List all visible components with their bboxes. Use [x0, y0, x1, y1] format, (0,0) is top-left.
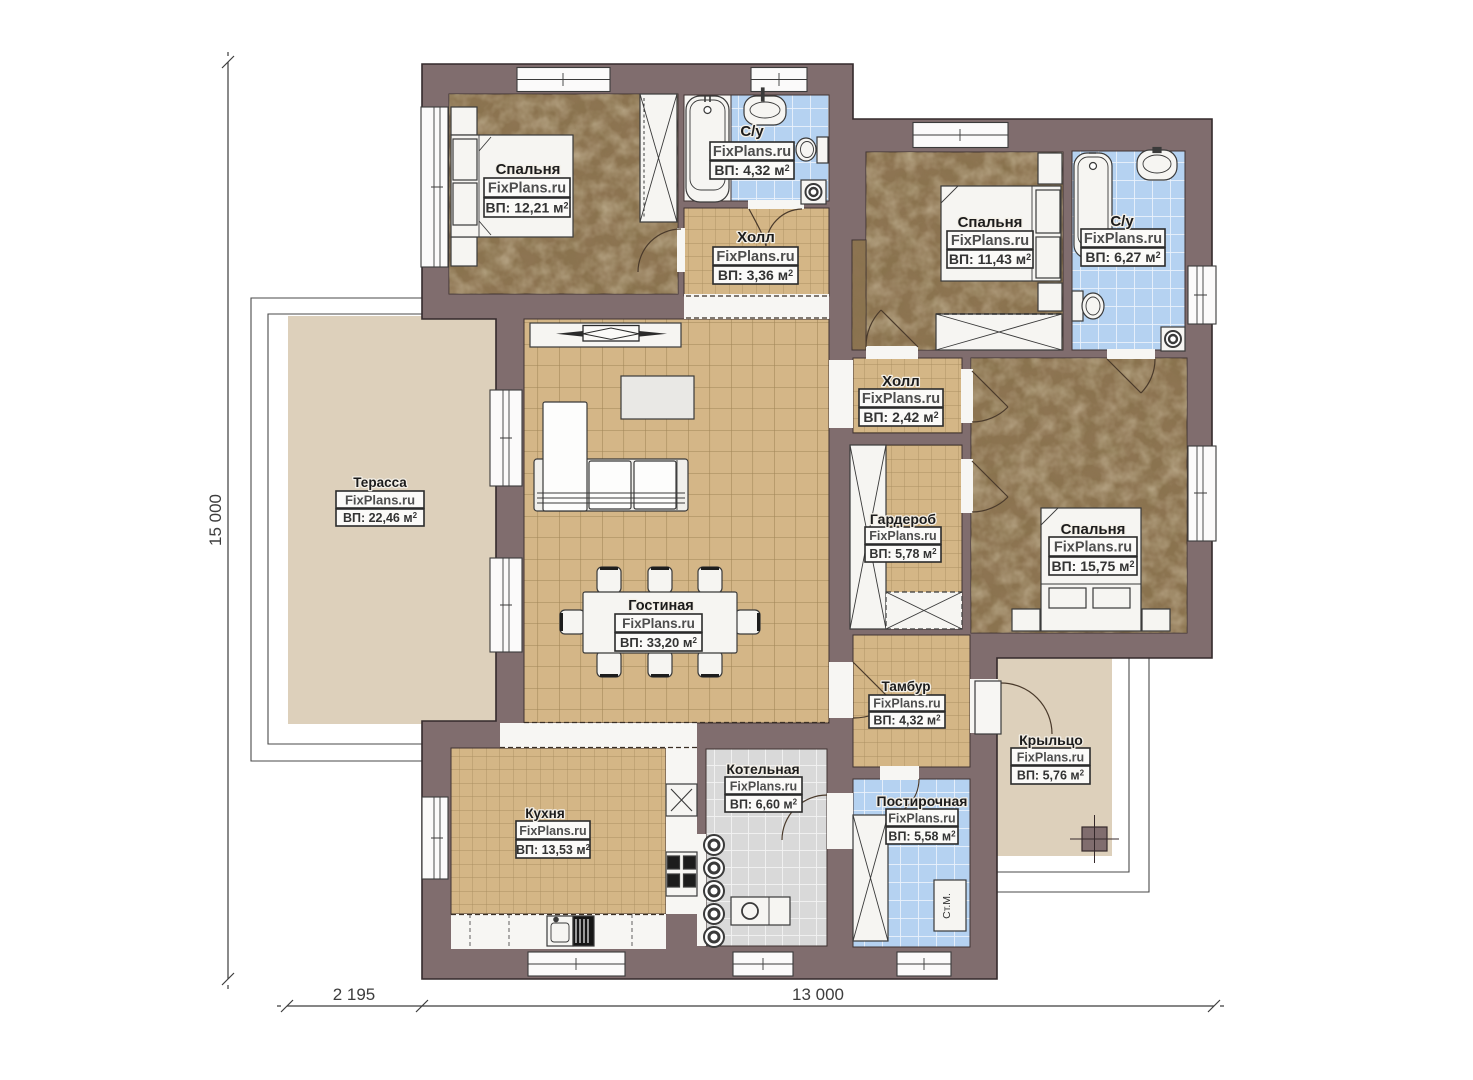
svg-text:15 000: 15 000: [206, 494, 225, 546]
svg-text:FixPlans.ru: FixPlans.ru: [862, 391, 940, 407]
svg-text:ВП: 33,20 м2: ВП: 33,20 м2: [620, 635, 697, 650]
svg-text:ВП: 22,46 м2: ВП: 22,46 м2: [343, 511, 418, 525]
svg-text:С/у: С/у: [740, 123, 764, 140]
svg-text:ВП: 5,58 м2: ВП: 5,58 м2: [888, 830, 956, 844]
svg-text:ВП: 13,53 м2: ВП: 13,53 м2: [516, 843, 591, 857]
svg-text:FixPlans.ru: FixPlans.ru: [622, 616, 695, 631]
svg-text:Крыльцо: Крыльцо: [1019, 732, 1083, 748]
svg-text:Кухня: Кухня: [525, 806, 564, 821]
svg-text:FixPlans.ru: FixPlans.ru: [345, 493, 415, 508]
svg-text:FixPlans.ru: FixPlans.ru: [713, 144, 791, 160]
svg-text:FixPlans.ru: FixPlans.ru: [730, 780, 797, 794]
svg-text:ВП: 3,36 м2: ВП: 3,36 м2: [718, 267, 793, 283]
svg-text:13 000: 13 000: [792, 985, 844, 1004]
svg-text:ВП: 4,32 м2: ВП: 4,32 м2: [873, 714, 941, 728]
svg-text:Холл: Холл: [737, 229, 775, 246]
svg-text:FixPlans.ru: FixPlans.ru: [873, 697, 940, 711]
svg-text:Тамбур: Тамбур: [882, 679, 931, 694]
svg-text:FixPlans.ru: FixPlans.ru: [888, 812, 955, 826]
svg-text:FixPlans.ru: FixPlans.ru: [1084, 231, 1162, 247]
svg-text:Спальня: Спальня: [958, 214, 1023, 231]
svg-text:ВП: 5,76 м2: ВП: 5,76 м2: [1017, 769, 1085, 783]
svg-text:FixPlans.ru: FixPlans.ru: [869, 529, 936, 543]
svg-text:FixPlans.ru: FixPlans.ru: [488, 181, 566, 197]
svg-text:Гостиная: Гостиная: [628, 598, 694, 614]
svg-text:Спальня: Спальня: [496, 161, 561, 178]
svg-text:С/у: С/у: [1110, 213, 1134, 230]
svg-text:FixPlans.ru: FixPlans.ru: [951, 233, 1029, 249]
svg-text:ВП: 2,42 м2: ВП: 2,42 м2: [863, 409, 938, 425]
svg-text:2 195: 2 195: [333, 985, 376, 1004]
svg-text:Котельная: Котельная: [726, 761, 799, 777]
svg-text:ВП: 4,32 м2: ВП: 4,32 м2: [714, 162, 789, 178]
svg-text:FixPlans.ru: FixPlans.ru: [1054, 540, 1132, 556]
svg-text:ВП: 15,75 м2: ВП: 15,75 м2: [1051, 558, 1134, 574]
svg-text:ВП: 6,27 м2: ВП: 6,27 м2: [1085, 249, 1160, 265]
svg-text:ВП: 11,43 м2: ВП: 11,43 м2: [949, 251, 1031, 267]
svg-text:FixPlans.ru: FixPlans.ru: [1017, 751, 1084, 765]
svg-text:ВП: 5,78 м2: ВП: 5,78 м2: [869, 547, 937, 561]
svg-text:Ст.М.: Ст.М.: [941, 893, 953, 919]
svg-text:ВП: 6,60 м2: ВП: 6,60 м2: [730, 798, 798, 812]
svg-text:FixPlans.ru: FixPlans.ru: [519, 824, 586, 838]
svg-text:Терасса: Терасса: [353, 475, 407, 490]
svg-text:Постирочная: Постирочная: [877, 793, 968, 809]
svg-text:Холл: Холл: [882, 373, 920, 390]
svg-text:Гардероб: Гардероб: [870, 511, 937, 527]
svg-text:ВП: 12,21 м2: ВП: 12,21 м2: [485, 200, 568, 216]
svg-text:Спальня: Спальня: [1061, 521, 1126, 538]
svg-text:FixPlans.ru: FixPlans.ru: [716, 249, 794, 265]
